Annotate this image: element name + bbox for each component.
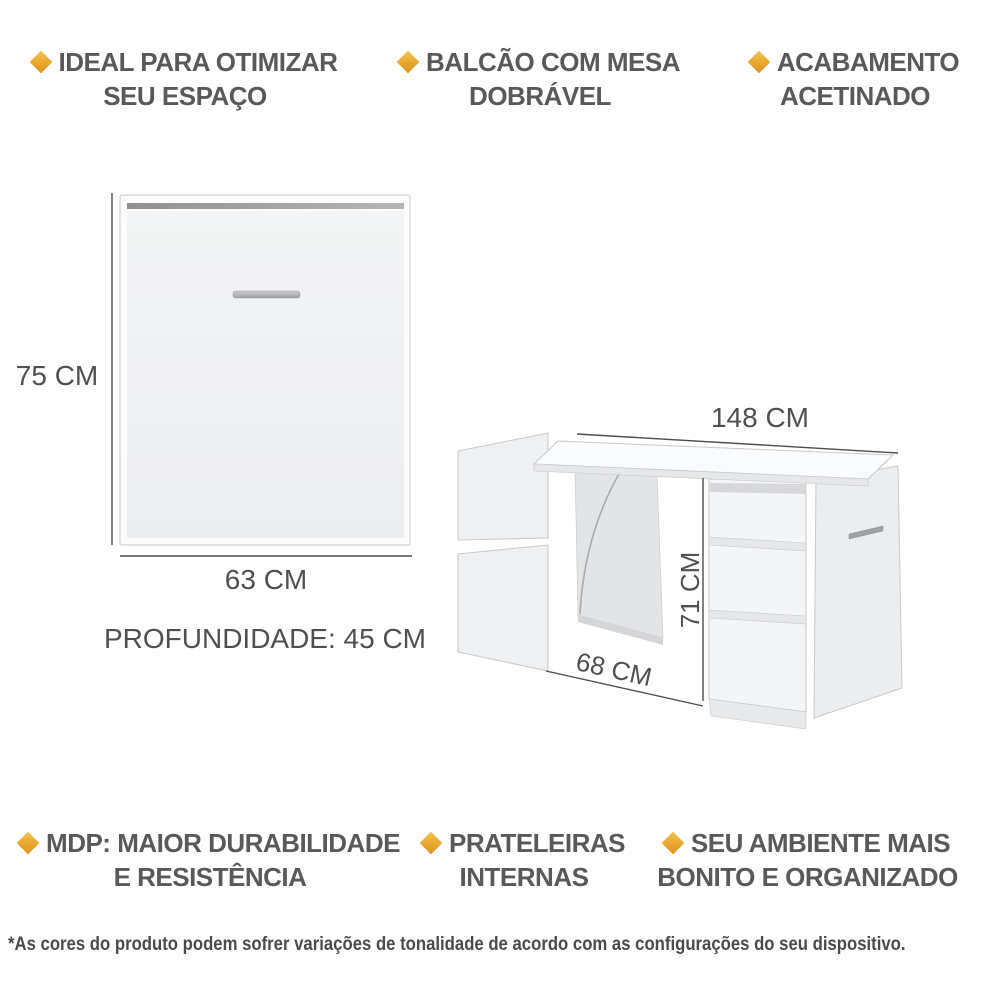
side-door-panel xyxy=(814,466,902,718)
diamond-bullet-icon xyxy=(420,832,443,855)
diamond-bullet-icon xyxy=(17,832,40,855)
open-width-label: 148 CM xyxy=(711,402,809,433)
diamond-bullet-icon xyxy=(662,832,685,855)
feature-internal-shelves: PRATELEIRAS INTERNAS xyxy=(418,826,630,894)
feature-mdp-durability: MDP: MAIOR DURABILIDADE E RESISTÊNCIA xyxy=(0,826,420,894)
closed-cabinet-diagram: 75 CM 63 CM PROFUNDIDADE: 45 CM xyxy=(16,193,426,654)
shelf-unit-front xyxy=(709,479,806,712)
width-label: 63 CM xyxy=(225,564,307,595)
color-disclaimer: *As cores do produto podem sofrer variaç… xyxy=(8,934,994,956)
feature-text: E RESISTÊNCIA xyxy=(0,860,420,894)
cabinet-top-edge xyxy=(127,203,404,209)
feature-text: MDP: MAIOR DURABILIDADE xyxy=(46,826,400,860)
left-side-panel-lower xyxy=(458,545,548,671)
feature-organized-environment: SEU AMBIENTE MAIS BONITO E ORGANIZADO xyxy=(635,826,980,894)
table-width-label: 68 CM xyxy=(573,646,654,692)
cabinet-door xyxy=(127,211,404,538)
height-label: 75 CM xyxy=(16,360,98,391)
depth-label: PROFUNDIDADE: 45 CM xyxy=(104,623,426,654)
door-handle xyxy=(233,291,300,298)
left-side-panel-upper xyxy=(458,433,548,540)
feature-text: SEU AMBIENTE MAIS xyxy=(691,826,950,860)
feature-text: PRATELEIRAS xyxy=(449,826,625,860)
feature-text: BONITO E ORGANIZADO xyxy=(635,860,980,894)
open-cabinet-diagram: 148 CM 71 CM 68 CM xyxy=(458,402,902,729)
open-height-label: 71 CM xyxy=(675,552,705,629)
feature-text: INTERNAS xyxy=(418,860,630,894)
